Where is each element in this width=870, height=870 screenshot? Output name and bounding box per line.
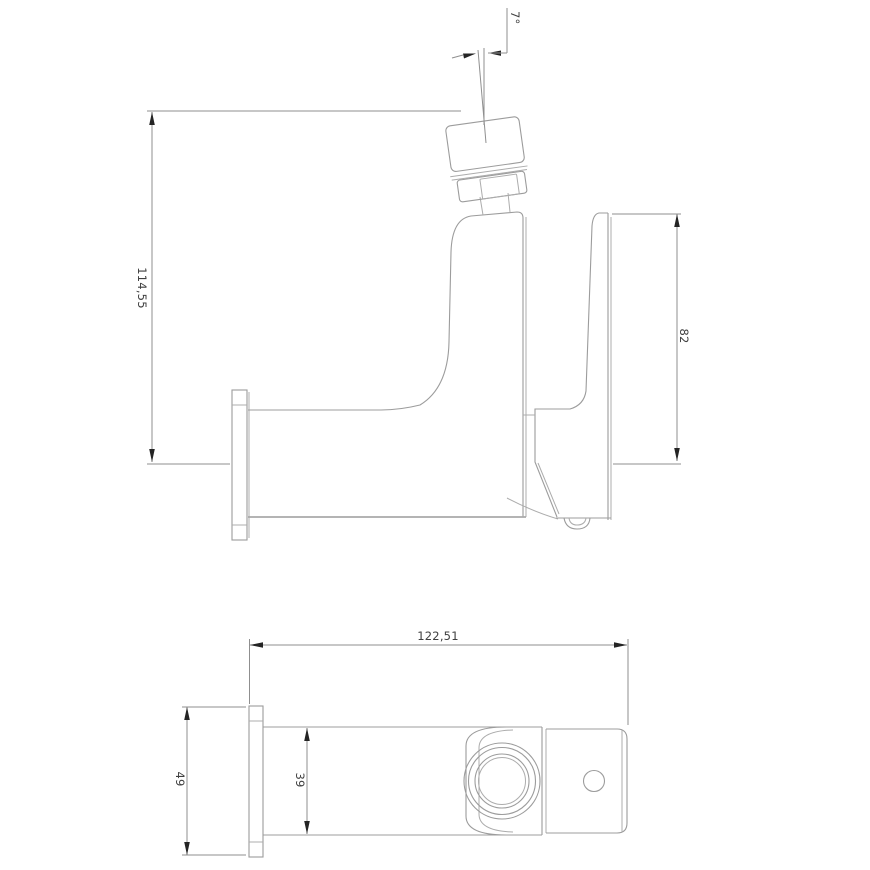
arrow-up [149,112,155,125]
arrow-down [304,821,310,834]
handle-outline [535,213,608,517]
dim-text-overall-height: 114,55 [135,267,149,308]
arrow-up [674,214,680,227]
aerator-ring-inner [479,758,526,805]
dimension-overall-length: 122,51 [250,629,629,725]
tilted-axis-line [478,50,486,143]
flange-outline [232,390,247,540]
aerator-cap [445,116,525,172]
wall-flange-top [249,706,263,857]
dim-text-body-width: 39 [293,772,307,787]
faucet-technical-drawing: 114,55 82 7° [0,0,870,870]
dimension-aerator-angle: 7° [452,8,522,143]
arrow-down [184,842,190,855]
dimension-handle-height: 82 [612,214,691,464]
aerator-nozzle [480,174,519,199]
dimension-flange-width: 49 [173,707,246,855]
drawing-sheet: 114,55 82 7° [0,0,870,870]
wall-flange-side [232,390,249,540]
handle-top [546,729,627,833]
leader-tail-left [452,55,463,58]
aerator-top [464,743,540,819]
valve-slant-inner [538,463,559,514]
dim-text-flange-width: 49 [173,771,187,786]
spout-outline [248,212,523,517]
dim-text-overall-length: 122,51 [417,629,458,643]
side-view: 114,55 82 7° [135,8,691,540]
top-view: 122,51 49 39 [173,629,628,857]
arrow-left [250,642,263,648]
faucet-body-side [248,193,526,517]
arrow-right [614,642,627,648]
handle-outline [546,729,627,833]
dim-text-aerator-angle: 7° [508,11,522,24]
arrow-down [674,448,680,461]
flange-outline [249,706,263,857]
arrow-up [304,728,310,741]
dimension-body-width: 39 [293,728,310,834]
aerator-head [443,116,531,203]
dimension-overall-height: 114,55 [135,111,461,464]
dim-text-handle-height: 82 [677,328,691,343]
arrow-up [184,707,190,720]
arrow-right [463,54,476,59]
spout-housing-inner [479,730,513,832]
arrow-down [149,449,155,462]
outlet-dome-inner [569,518,586,525]
aerator-ring-3 [475,754,529,808]
handle-screw-hole [584,771,605,792]
